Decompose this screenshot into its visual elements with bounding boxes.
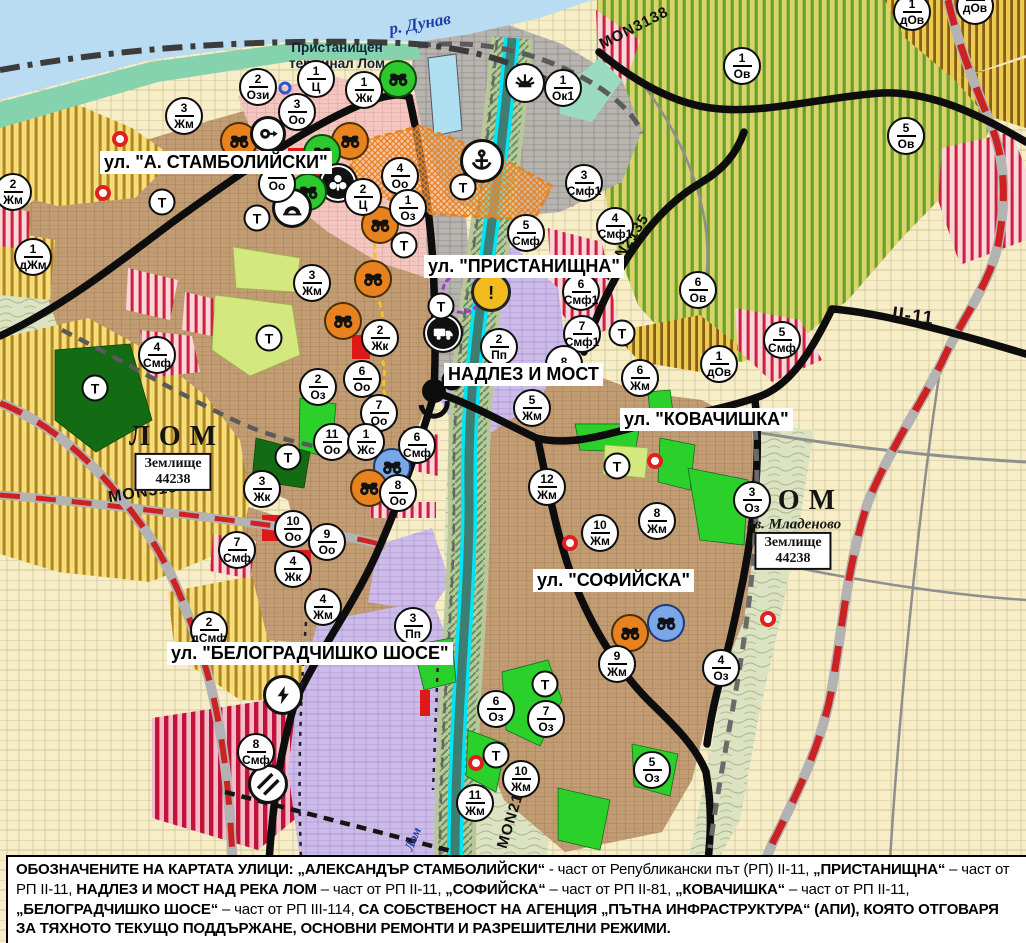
zone-marker-number: 3	[410, 612, 417, 624]
zone-marker-code: Смф1	[564, 294, 599, 306]
zone-marker-number: 9	[324, 528, 331, 540]
transport-marker: Т	[604, 453, 631, 480]
transport-marker: Т	[256, 325, 283, 352]
zone-marker-code: Пп	[405, 628, 421, 640]
zone-marker-number: 5	[523, 219, 530, 231]
zone-marker: 2Ц	[344, 178, 382, 216]
zone-marker-number: 6	[493, 695, 500, 707]
transport-marker: Т	[428, 293, 455, 320]
zone-marker-number: 8	[395, 479, 402, 491]
zone-marker-number: 4	[320, 593, 327, 605]
zone-marker-code: Жк	[285, 571, 302, 583]
zone-marker: 3Пп	[394, 607, 432, 645]
transport-marker: Т	[532, 671, 559, 698]
dot-red-icon	[112, 131, 128, 147]
zone-marker-code: Ок1	[552, 90, 574, 102]
transport-marker: Т	[244, 205, 271, 232]
zone-marker-code: Жм	[537, 489, 557, 501]
poi-fan-icon	[505, 63, 545, 103]
zone-marker: 3Жк	[243, 470, 281, 508]
zone-marker: 3Жм	[293, 264, 331, 302]
zone-marker-number: 6	[637, 364, 644, 376]
zone-marker: 4Жк	[274, 550, 312, 588]
zone-marker: 1дЖм	[14, 238, 52, 276]
note-segment: „СОФИЙСКА“	[445, 881, 545, 898]
zone-marker-number: 1	[405, 194, 412, 206]
zone-marker: 11Жм	[456, 784, 494, 822]
zone-marker-code: Оз	[488, 711, 503, 723]
zone-marker-number: 9	[614, 650, 621, 662]
zone-marker-number: 3	[581, 169, 588, 181]
zone-marker-code: Оз	[538, 721, 553, 733]
dot-red-icon	[562, 535, 578, 551]
zone-marker-code: Смф	[403, 447, 431, 459]
zone-marker-code: дОв	[900, 14, 924, 26]
zone-marker: 3Оо	[278, 93, 316, 131]
transport-marker: Т	[483, 742, 510, 769]
zone-marker: 1Оз	[389, 189, 427, 227]
zone-marker: 1Ов	[723, 47, 761, 85]
zone-marker-number: 6	[578, 278, 585, 290]
zone-marker-number: 7	[234, 536, 241, 548]
zone-marker: 12Жм	[528, 468, 566, 506]
zone-marker: 1Ц	[297, 60, 335, 98]
zone-marker-number: 6	[414, 431, 421, 443]
transport-marker: Т	[609, 320, 636, 347]
zone-marker-number: 4	[397, 162, 404, 174]
zone-marker-number: 5	[649, 756, 656, 768]
zone-marker-number: 10	[514, 765, 527, 777]
zone-marker: 4Оз	[702, 649, 740, 687]
zone-marker-number: 4	[718, 654, 725, 666]
zone-marker-number: 8	[253, 738, 260, 750]
transport-marker: Т	[149, 189, 176, 216]
zone-marker-number: 7	[579, 320, 586, 332]
zone-marker-code: Смф	[143, 357, 171, 369]
note-segment: – част от РП II-11,	[785, 881, 909, 898]
zone-marker-number: 3	[749, 486, 756, 498]
zone-marker-code: Ц	[312, 81, 321, 93]
zone-marker-code: Жк	[372, 340, 389, 352]
map-note: ОБОЗНАЧЕНИТЕ НА КАРТАТА УЛИЦИ: „АЛЕКСАНД…	[6, 855, 1026, 943]
zone-marker-number: 5	[529, 394, 536, 406]
dot-red-icon	[468, 755, 484, 771]
zone-marker: 5Жм	[513, 389, 551, 427]
land-box-west: Землище44238	[134, 453, 211, 491]
zone-marker-number: 2	[360, 183, 367, 195]
zone-marker-number: 1	[560, 74, 567, 86]
zone-marker-number: 2	[496, 333, 503, 345]
zone-marker-number: 12	[540, 473, 553, 485]
poi-monument-orange-icon	[354, 260, 392, 298]
zone-marker-code: дОв	[707, 366, 731, 378]
zone-marker-code: Оо	[289, 114, 306, 126]
zone-marker-number: 11	[469, 789, 482, 801]
zone-marker: 4Жм	[304, 588, 342, 626]
zone-marker: 9Жм	[598, 645, 636, 683]
transport-marker: Т	[82, 375, 109, 402]
zone-marker-number: 7	[376, 399, 383, 411]
zone-marker: 11Оо	[313, 423, 351, 461]
zone-marker-code: Смф	[242, 754, 270, 766]
zone-marker: 2Оз	[299, 368, 337, 406]
zone-marker-code: Жм	[3, 194, 23, 206]
zone-marker-number: 1	[30, 243, 37, 255]
zone-marker-number: 4	[290, 555, 297, 567]
svg-text:!: !	[488, 282, 494, 303]
zone-marker: 2Жк	[361, 319, 399, 357]
zone-marker-code: Жм	[174, 118, 194, 130]
zone-marker: 5Ов	[887, 117, 925, 155]
zone-marker: 6Ов	[679, 271, 717, 309]
zone-marker-code: Жм	[522, 410, 542, 422]
dot-red-icon	[647, 453, 663, 469]
zone-marker: 6Смф1	[562, 273, 600, 311]
zone-marker-number: 4	[612, 212, 619, 224]
zone-marker-number: 5	[779, 326, 786, 338]
zone-marker-code: Оз	[713, 670, 728, 682]
zone-marker: 8Оо	[379, 474, 417, 512]
zone-marker-code: Жк	[254, 491, 271, 503]
note-segment: „КОВАЧИШКА“	[675, 881, 785, 898]
zone-marker-code: Ов	[690, 292, 707, 304]
zone-marker-number: 3	[259, 475, 266, 487]
zone-marker: 3Оз	[733, 481, 771, 519]
zone-marker-code: Оз	[644, 772, 659, 784]
zone-marker: 5Смф	[763, 321, 801, 359]
zone-marker-number: 1	[909, 0, 916, 10]
poi-warning-icon: !	[471, 272, 511, 312]
zone-marker-code: Смф	[512, 235, 540, 247]
zone-marker: 6Оз	[477, 690, 515, 728]
zone-marker: 6Жм	[621, 359, 659, 397]
zone-marker-code: Оз	[400, 210, 415, 222]
note-segment: „БЕЛОГРАДЧИШКО ШОСЕ“	[16, 901, 218, 918]
zone-marker-number: 3	[309, 269, 316, 281]
zone-marker-code: дОв	[963, 2, 987, 14]
street-label-belogradchishko: ул. "БЕЛОГРАДЧИШКО ШОСЕ"	[167, 642, 453, 665]
note-segment: – част от РП III-114,	[218, 901, 359, 918]
land-box-east: Землище44238	[754, 532, 831, 570]
zone-marker: 7Смф	[218, 531, 256, 569]
street-label-nadlez-i-most: НАДЛЕЗ И МОСТ	[444, 363, 603, 386]
dot-blue-icon	[279, 82, 292, 95]
zone-marker: 5Смф	[507, 214, 545, 252]
zone-marker-code: Смф	[223, 552, 251, 564]
poi-monument-green-icon	[379, 60, 417, 98]
zone-marker-code: Жм	[302, 285, 322, 297]
street-label-stambolijski: ул. "А. СТАМБОЛИЙСКИ"	[100, 151, 332, 174]
zone-marker-number: 10	[286, 515, 299, 527]
zone-marker-code: Ози	[247, 89, 270, 101]
transport-marker: Т	[275, 444, 302, 471]
zone-marker-code: Ов	[898, 138, 915, 150]
zone-marker-code: Жм	[607, 666, 627, 678]
zone-marker-number: 11	[326, 428, 339, 440]
zone-marker: 2Пп	[480, 328, 518, 366]
zone-marker-code: Жм	[313, 609, 333, 621]
zone-marker-code: Оо	[319, 544, 336, 556]
zone-marker-code: Оз	[744, 502, 759, 514]
zone-marker: 3Жм	[165, 97, 203, 135]
poi-monument-blue-icon	[647, 604, 685, 642]
zone-marker-code: Смф	[768, 342, 796, 354]
zone-marker: 1Ок1	[544, 69, 582, 107]
zone-marker: 6Оо	[343, 360, 381, 398]
zone-marker-code: Оо	[354, 381, 371, 393]
zone-marker-code: Оо	[390, 495, 407, 507]
zone-marker-code: Ц	[359, 199, 368, 211]
zone-marker: 7Оз	[527, 700, 565, 738]
zone-marker-number: 6	[359, 365, 366, 377]
dot-red-icon	[95, 185, 111, 201]
transport-marker: Т	[450, 174, 477, 201]
zone-marker-number: 1	[739, 52, 746, 64]
zone-marker-number: 7	[543, 705, 550, 717]
zone-marker: 9Оо	[308, 523, 346, 561]
zone-marker-code: Жм	[590, 535, 610, 547]
zone-marker-number: 2	[315, 373, 322, 385]
zone-marker-code: Жс	[357, 444, 375, 456]
zone-marker: 10Оо	[274, 510, 312, 548]
zone-marker-number: 6	[695, 276, 702, 288]
zone-marker-number: 8	[654, 507, 661, 519]
note-segment: – част от РП II-11,	[317, 881, 445, 898]
zone-marker: 8Смф	[237, 733, 275, 771]
zone-marker-number: 3	[294, 98, 301, 110]
zone-marker: 10Жм	[502, 760, 540, 798]
zone-marker: 6Смф	[398, 426, 436, 464]
zone-marker: 4Смф	[138, 336, 176, 374]
zone-marker-code: Оо	[285, 531, 302, 543]
zone-marker-number: 3	[181, 102, 188, 114]
zone-marker-number: 5	[903, 122, 910, 134]
zone-marker-number: 10	[593, 519, 606, 531]
zone-marker-code: Жм	[511, 781, 531, 793]
zone-marker-code: Оз	[310, 389, 325, 401]
street-label-pristanishtna: ул. "ПРИСТАНИЩНА"	[424, 255, 624, 278]
note-segment: ОБОЗНАЧЕНИТЕ НА КАРТАТА УЛИЦИ: „АЛЕКСАНД…	[16, 861, 545, 878]
zone-marker-code: дЖм	[19, 259, 46, 271]
zone-marker-number: 2	[377, 324, 384, 336]
zone-marker-number: 2	[255, 73, 262, 85]
zone-marker-code: Смф1	[598, 228, 633, 240]
zone-marker: 1Жк	[345, 71, 383, 109]
zone-marker-code: Оо	[269, 180, 286, 192]
zone-marker-number: 1	[716, 350, 723, 362]
street-label-sofijska: ул. "СОФИЙСКА"	[533, 569, 694, 592]
poi-bolt-icon	[263, 675, 303, 715]
zone-marker-code: Ов	[734, 68, 751, 80]
map-canvas: ул. "А. СТАМБОЛИЙСКИ"ул. "ПРИСТАНИЩНА"НА…	[0, 0, 1026, 943]
zone-marker: 10Жм	[581, 514, 619, 552]
zone-marker: 1дОв	[700, 345, 738, 383]
zone-marker-code: Жм	[630, 380, 650, 392]
note-segment: „ПРИСТАНИЩНА“	[813, 861, 945, 878]
zone-marker: 4Смф1	[596, 207, 634, 245]
zone-marker-number: 1	[361, 76, 368, 88]
note-segment: - част от Републикански път (РП) II-11,	[545, 861, 813, 878]
zone-marker: 5Оз	[633, 751, 671, 789]
zone-marker-code: Оо	[324, 444, 341, 456]
zone-marker-code: Жм	[465, 805, 485, 817]
zone-marker: 2Ози	[239, 68, 277, 106]
zone-marker-number: 1	[313, 65, 320, 77]
dot-red-icon	[760, 611, 776, 627]
note-segment: НАДЛЕЗ И МОСТ НАД РЕКА ЛОМ	[76, 881, 317, 898]
zone-marker: 3Смф1	[565, 164, 603, 202]
zone-marker-number: 2	[10, 178, 17, 190]
city-label-lom-west: ЛОМ	[129, 421, 225, 453]
transport-marker: Т	[391, 232, 418, 259]
zone-marker-number: 1	[363, 428, 370, 440]
zone-marker-code: Жм	[647, 523, 667, 535]
zone-marker: 1Жс	[347, 423, 385, 461]
zone-marker-number: 2	[206, 616, 213, 628]
zone-marker-number: 4	[154, 341, 161, 353]
zone-marker-code: Пп	[491, 349, 507, 361]
zone-marker: 8Жм	[638, 502, 676, 540]
zone-marker-code: Жк	[356, 92, 373, 104]
poi-monument-orange-icon	[324, 302, 362, 340]
zone-marker-code: Смф1	[567, 185, 602, 197]
street-label-kovachishka: ул. "КОВАЧИШКА"	[620, 408, 793, 431]
note-segment: – част от РП II-81,	[546, 881, 676, 898]
